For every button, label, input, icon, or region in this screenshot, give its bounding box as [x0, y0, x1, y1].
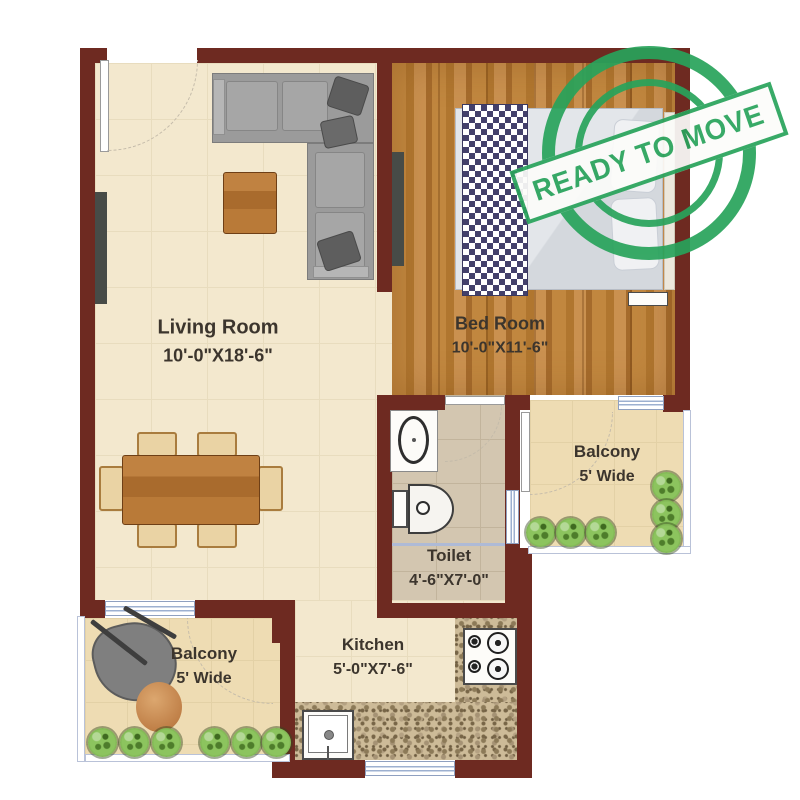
stove-burner	[468, 635, 481, 648]
bed-room-label: Bed Room 10'-0"X11'-6"	[452, 310, 549, 359]
kitchen-name: Kitchen	[333, 633, 413, 658]
balcony-right-dims: 5' Wide	[574, 465, 640, 488]
toilet-flush	[416, 501, 430, 515]
bed-room-dims: 10'-0"X11'-6"	[452, 336, 549, 359]
coffee-table	[223, 172, 277, 234]
plant	[652, 524, 681, 553]
toilet-door-leaf	[445, 396, 505, 405]
wardrobe	[392, 152, 404, 266]
kitchen-window	[365, 761, 455, 776]
bedroom-balcony-door-leaf	[521, 412, 530, 492]
dining-chair	[197, 523, 237, 548]
plant	[232, 728, 261, 757]
balcony-left-label: Balcony 5' Wide	[171, 642, 237, 690]
sofa-cushion	[315, 152, 365, 208]
wall	[80, 48, 95, 618]
washbasin-drain	[412, 438, 416, 442]
stove-burner	[487, 632, 509, 654]
kitchen-dims: 5'-0"X7'-6"	[333, 658, 413, 681]
balcony-left-railing-bottom	[85, 754, 290, 762]
wall	[377, 603, 520, 618]
living-room-label: Living Room 10'-0"X18'-6"	[157, 313, 278, 368]
bed-room-name: Bed Room	[452, 310, 549, 336]
plant	[262, 728, 291, 757]
toilet-label: Toilet 4'-6"X7'-0"	[409, 544, 489, 592]
kitchen-faucet	[324, 730, 334, 740]
bed-runner	[462, 104, 528, 296]
plant	[652, 472, 681, 501]
balcony-left-dims: 5' Wide	[171, 667, 237, 690]
floor-plan: Living Room 10'-0"X18'-6" Bed Room 10'-0…	[0, 0, 800, 800]
sofa-armrest	[313, 266, 369, 278]
toilet-window	[506, 490, 519, 544]
balcony-right-name: Balcony	[574, 440, 640, 465]
living-room-dims: 10'-0"X18'-6"	[157, 342, 278, 368]
plant	[526, 518, 555, 547]
dining-chair	[99, 466, 124, 511]
plant	[200, 728, 229, 757]
dining-chair	[137, 523, 177, 548]
sofa-cushion	[226, 81, 278, 131]
sink-pipe	[327, 746, 329, 760]
balcony-left-railing-side	[77, 616, 85, 762]
plant	[120, 728, 149, 757]
balcony-right-railing-side	[683, 410, 691, 550]
stove-burner	[468, 660, 481, 673]
ready-to-move-stamp: READY TO MOVE	[542, 46, 756, 260]
plant	[556, 518, 585, 547]
balcony-right-label: Balcony 5' Wide	[574, 440, 640, 488]
balcony-left-name: Balcony	[171, 642, 237, 667]
toilet-dims: 4'-6"X7'-0"	[409, 569, 489, 592]
living-balcony-slider	[105, 601, 195, 616]
kitchen-label: Kitchen 5'-0"X7'-6"	[333, 633, 413, 681]
wall	[517, 548, 532, 778]
stove-burner	[487, 658, 509, 680]
wall	[272, 760, 365, 778]
plant	[152, 728, 181, 757]
tv-console	[95, 192, 107, 304]
plant	[586, 518, 615, 547]
nightstand	[628, 292, 668, 306]
wall	[377, 63, 392, 292]
dining-table	[122, 455, 260, 525]
toilet-tank	[392, 490, 408, 528]
dining-chair	[137, 432, 177, 457]
plant	[88, 728, 117, 757]
wall	[195, 600, 280, 618]
living-room-name: Living Room	[157, 313, 278, 342]
sofa-armrest	[213, 79, 225, 135]
dining-chair	[197, 432, 237, 457]
toilet-name: Toilet	[409, 544, 489, 569]
bedroom-balcony-window	[618, 396, 664, 410]
dining-chair	[258, 466, 283, 511]
